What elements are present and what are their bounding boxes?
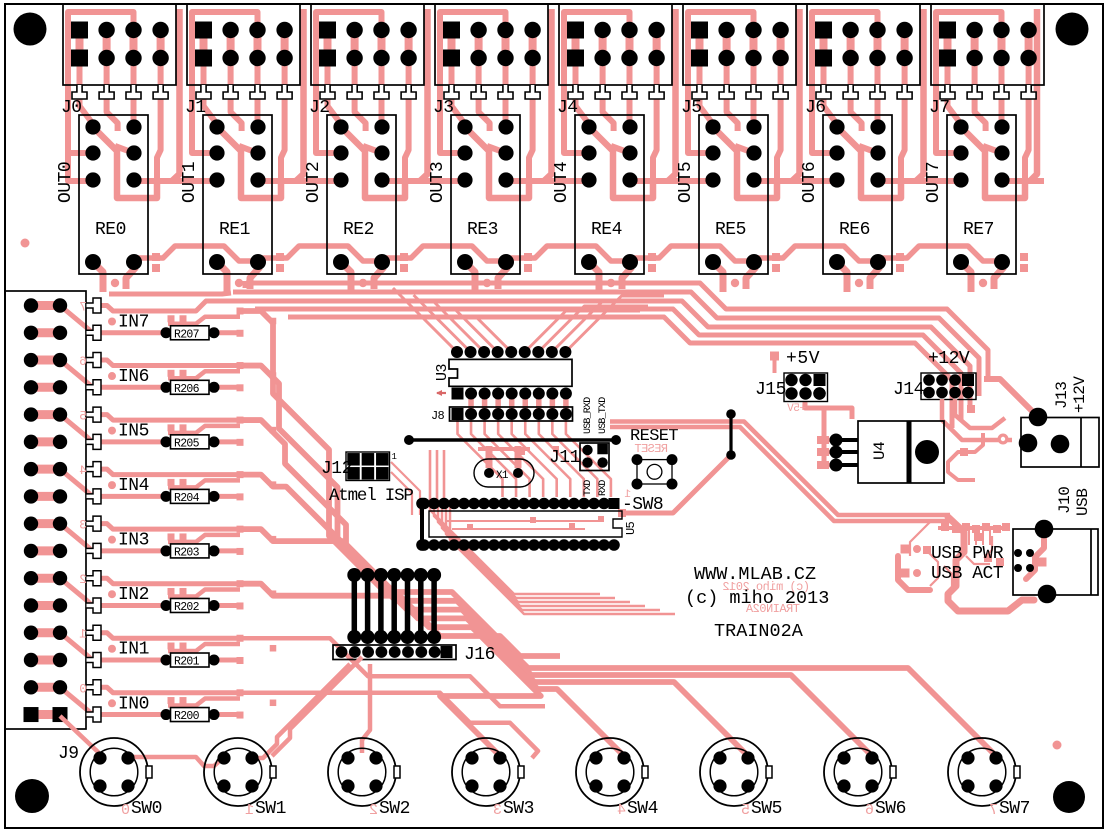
- svg-text:R203: R203: [174, 546, 200, 559]
- svg-text:R202: R202: [174, 601, 200, 614]
- svg-text:+12V: +12V: [928, 349, 970, 369]
- svg-text:SW2: SW2: [379, 799, 410, 819]
- svg-text:R207: R207: [174, 328, 199, 341]
- svg-text:TRAIN02A: TRAIN02A: [714, 621, 804, 642]
- svg-text:1: 1: [392, 452, 397, 462]
- svg-text:IN1: IN1: [118, 640, 149, 660]
- svg-text:SW1: SW1: [255, 799, 286, 819]
- svg-text:RE0: RE0: [95, 220, 126, 240]
- svg-text:0: 0: [121, 802, 130, 819]
- svg-text:SW6: SW6: [875, 799, 906, 819]
- svg-text:R205: R205: [174, 437, 200, 450]
- svg-text:R206: R206: [174, 383, 200, 396]
- svg-text:5: 5: [79, 409, 87, 424]
- svg-text:OUT3: OUT3: [428, 162, 448, 203]
- svg-text:IN0: IN0: [118, 694, 149, 714]
- svg-text:R200: R200: [174, 710, 200, 723]
- svg-text:4: 4: [79, 463, 87, 478]
- svg-text:U4: U4: [871, 442, 889, 460]
- svg-text:1: 1: [79, 627, 87, 642]
- svg-text:0: 0: [79, 681, 87, 696]
- svg-text:7: 7: [989, 802, 998, 819]
- svg-text:2: 2: [369, 802, 378, 819]
- svg-text:3: 3: [493, 802, 502, 819]
- svg-text:J13: J13: [1053, 382, 1071, 409]
- svg-text:2: 2: [79, 572, 87, 587]
- svg-text:RESET: RESET: [635, 442, 668, 456]
- svg-text:J10: J10: [1056, 487, 1074, 514]
- svg-text:IN2: IN2: [118, 585, 149, 605]
- svg-text:+12V: +12V: [1071, 376, 1089, 413]
- svg-text:OUT4: OUT4: [552, 162, 572, 203]
- svg-text:RE5: RE5: [715, 220, 746, 240]
- svg-text:Atmel ISP: Atmel ISP: [329, 486, 413, 506]
- svg-text:U5: U5: [624, 521, 638, 535]
- svg-text:J8: J8: [431, 409, 445, 423]
- svg-text:OUT0: OUT0: [56, 162, 76, 203]
- svg-text:RE1: RE1: [219, 220, 250, 240]
- svg-text:USB ACT: USB ACT: [931, 564, 1004, 584]
- svg-text:SW7: SW7: [999, 799, 1030, 819]
- svg-text:USB_TXD: USB_TXD: [598, 397, 609, 434]
- svg-text:IN4: IN4: [118, 476, 149, 496]
- svg-text:OUT1: OUT1: [180, 162, 200, 203]
- svg-text:1: 1: [624, 489, 631, 501]
- svg-text:RE4: RE4: [591, 220, 622, 240]
- svg-text:1: 1: [245, 802, 254, 819]
- svg-text:J15: J15: [755, 380, 786, 400]
- svg-text:J12: J12: [321, 459, 352, 479]
- svg-text:IN6: IN6: [118, 367, 149, 387]
- svg-text:7: 7: [79, 300, 87, 315]
- svg-text:3: 3: [79, 518, 87, 533]
- svg-text:RE6: RE6: [839, 220, 870, 240]
- svg-text:IN7: IN7: [118, 313, 149, 333]
- svg-text:J11: J11: [549, 448, 580, 468]
- svg-text:OUT6: OUT6: [800, 162, 820, 203]
- svg-text:USB_RXD: USB_RXD: [583, 397, 594, 434]
- svg-text:+5V: +5V: [787, 403, 806, 415]
- svg-text:J14: J14: [893, 380, 924, 400]
- svg-text:OUT7: OUT7: [924, 162, 944, 203]
- svg-text:SW0: SW0: [131, 799, 162, 819]
- svg-text:SW5: SW5: [751, 799, 782, 819]
- svg-text:RE7: RE7: [963, 220, 994, 240]
- svg-text:SW4: SW4: [627, 799, 658, 819]
- svg-text:USB: USB: [1074, 489, 1092, 516]
- svg-text:J9: J9: [58, 744, 79, 764]
- svg-text:R201: R201: [174, 656, 200, 669]
- svg-text:TXD: TXD: [583, 480, 594, 496]
- svg-text:J16: J16: [464, 645, 495, 665]
- svg-text:+5V: +5V: [786, 349, 820, 369]
- svg-text:IN5: IN5: [118, 422, 149, 442]
- svg-text:X1: X1: [496, 470, 509, 482]
- svg-text:OUT2: OUT2: [304, 162, 324, 203]
- svg-text:R204: R204: [174, 492, 200, 505]
- svg-text:4: 4: [617, 802, 626, 819]
- svg-text:6: 6: [79, 354, 87, 369]
- svg-text:5: 5: [741, 802, 750, 819]
- svg-text:6: 6: [865, 802, 874, 819]
- svg-text:OUT5: OUT5: [676, 162, 696, 203]
- svg-text:TRAIN02A: TRAIN02A: [745, 602, 800, 616]
- svg-text:SW3: SW3: [503, 799, 534, 819]
- svg-text:RE2: RE2: [343, 220, 374, 240]
- svg-text:USB PWR: USB PWR: [931, 544, 1004, 564]
- svg-text:IN3: IN3: [118, 531, 149, 551]
- svg-text:U3: U3: [434, 363, 451, 381]
- svg-text:RXD: RXD: [598, 480, 609, 496]
- svg-text:RE3: RE3: [467, 220, 498, 240]
